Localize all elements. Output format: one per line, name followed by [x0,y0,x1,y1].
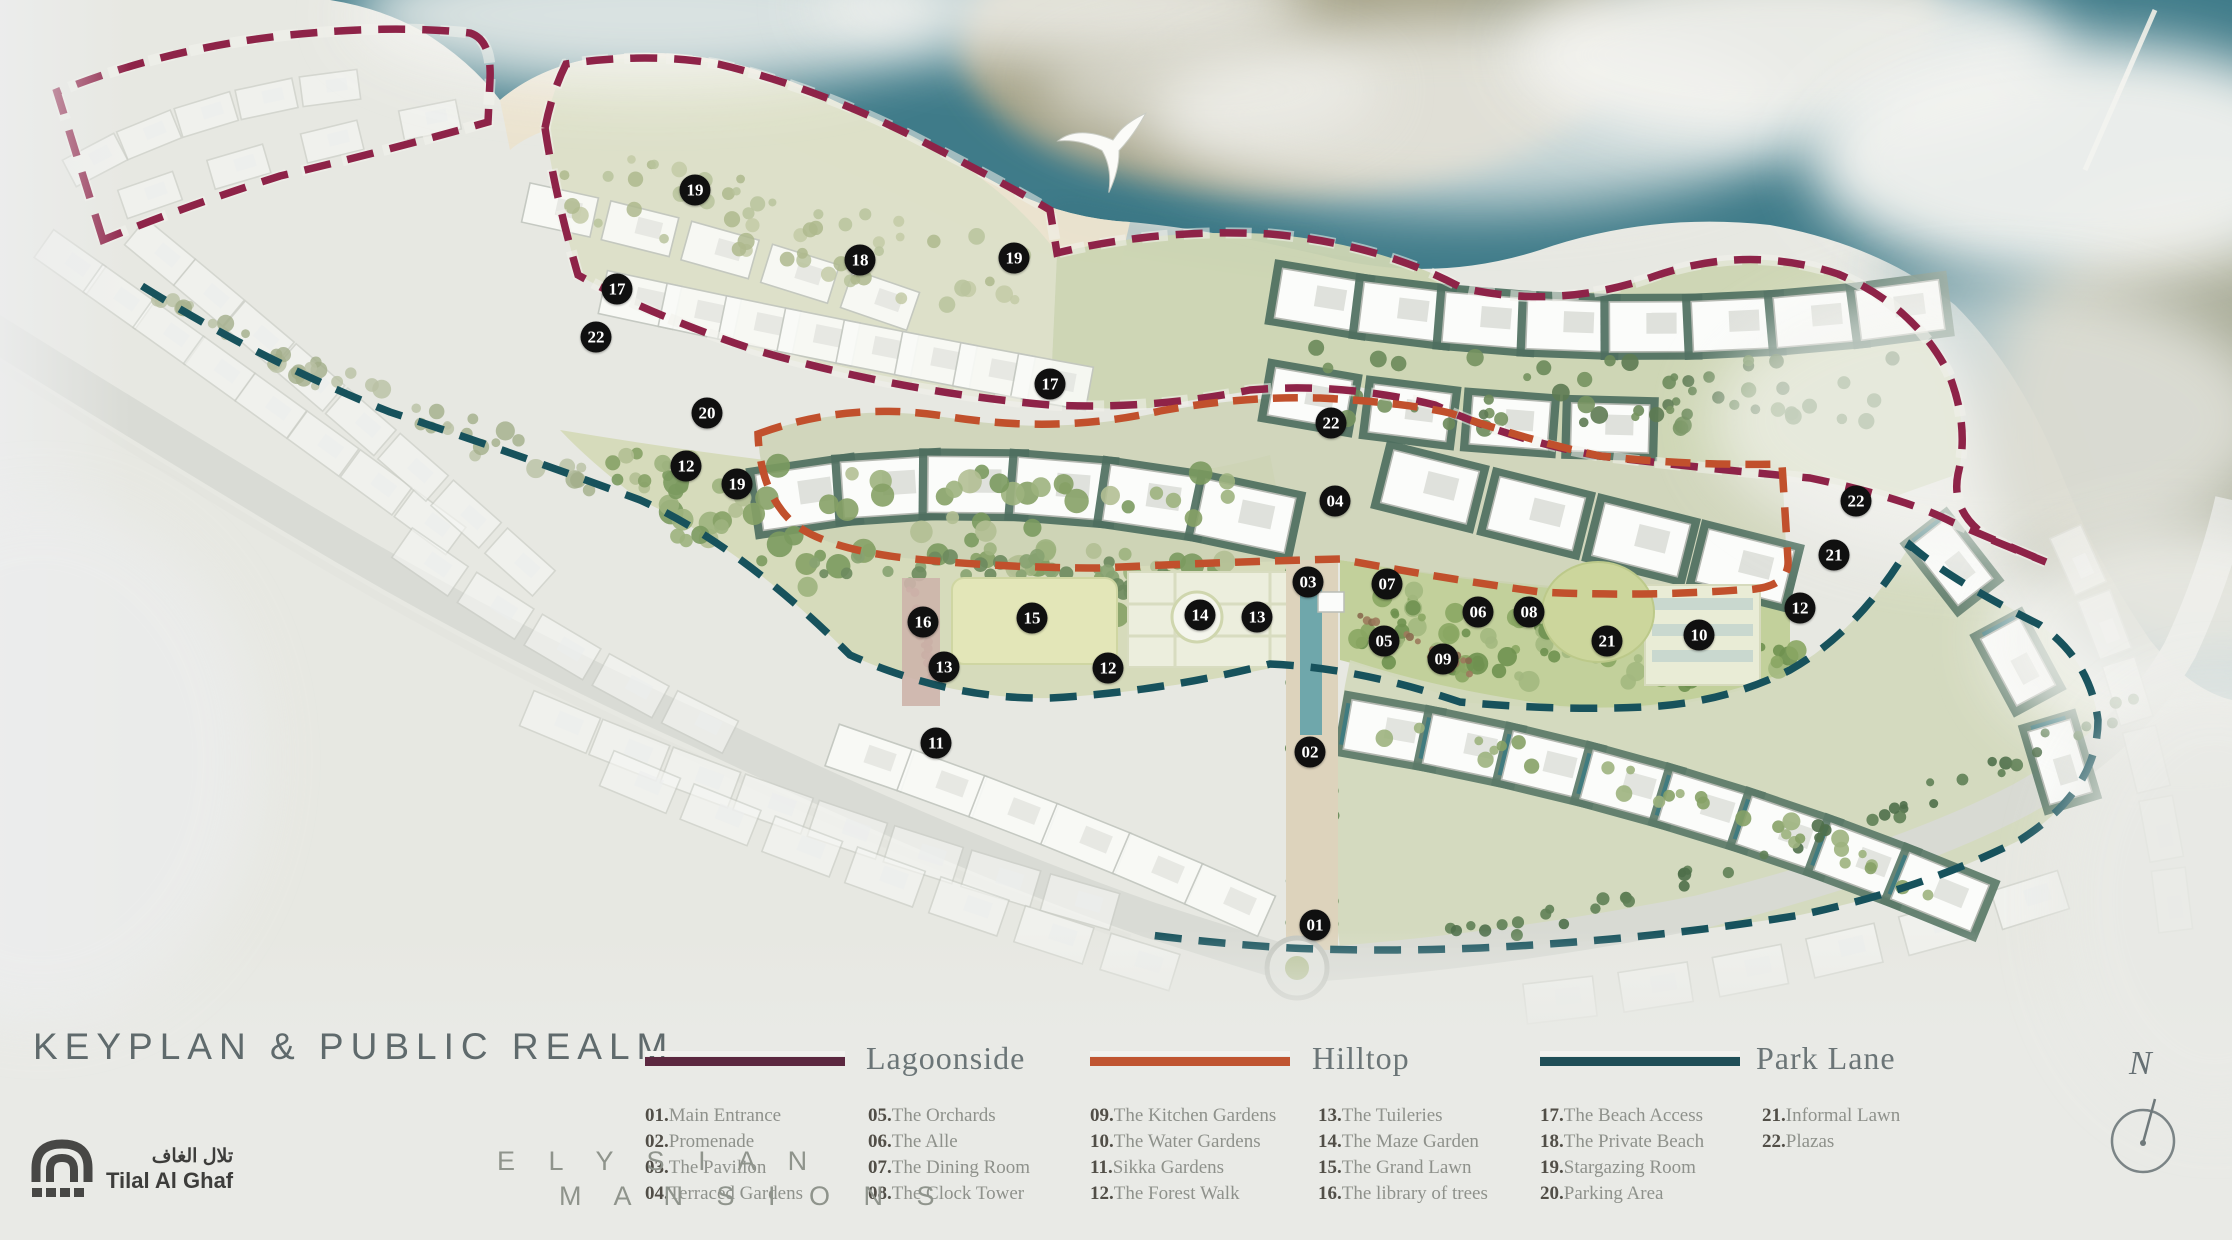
tree [467,413,478,424]
tree [1879,809,1891,821]
legend-item-13: 13.The Tuileries [1318,1103,1488,1129]
tree [756,555,767,566]
tree [1119,548,1132,561]
legend-item-label: The Orchards [892,1105,996,1126]
tree [819,494,839,514]
map-marker-20: 20 [692,398,723,429]
tree [1831,830,1849,848]
map-marker-19: 19 [999,243,1030,274]
tree [1405,600,1420,615]
tree [780,252,795,267]
tree [1681,408,1692,419]
tree [1031,477,1051,497]
legend-item-label: Plazas [1786,1131,1835,1152]
legend-item-number: 16. [1318,1183,1342,1204]
tree [954,280,971,297]
map-marker-22: 22 [1316,408,1347,439]
map-marker-13: 13 [929,652,960,683]
north-compass: N [2085,1045,2205,1205]
tree [612,474,624,486]
tree [798,577,818,597]
tree [945,481,962,498]
legend-item-17: 17.The Beach Access [1540,1103,1704,1129]
tree [1623,895,1635,907]
tree [1577,396,1594,413]
tree [208,319,218,329]
legend-item-number: 15. [1318,1157,1342,1178]
map-marker-11: 11 [921,728,952,759]
tree [896,233,905,242]
tree [985,277,995,287]
tree [910,521,933,544]
map-marker-07: 07 [1372,569,1403,600]
tree [1536,360,1551,375]
tree [241,329,250,338]
tree [1866,814,1878,826]
legend-column-5: 17.The Beach Access18.The Private Beach1… [1540,1103,1704,1207]
legend-item-number: 12. [1090,1183,1114,1204]
legend-item-number: 17. [1540,1105,1564,1126]
map-marker-21: 21 [1592,626,1623,657]
tree [1759,850,1768,859]
tree [975,520,996,541]
tree [871,484,894,507]
tree [1663,790,1675,802]
tree [1185,509,1203,527]
tree [1465,657,1472,664]
legend-item-number: 10. [1090,1131,1114,1152]
tree [1545,905,1554,914]
tree [443,421,452,430]
tree [813,209,823,219]
tree [670,529,685,544]
tree [895,292,907,304]
tree [1166,493,1181,508]
legend-item-05: 05.The Orchards [868,1103,1030,1129]
tree [1840,857,1851,868]
tree [638,474,651,487]
tree [882,566,893,577]
legend-item-18: 18.The Private Beach [1540,1129,1704,1155]
tree [797,248,808,259]
tree [1219,473,1235,489]
tree [1370,351,1387,368]
map-marker-10: 10 [1684,620,1715,651]
tree [1926,778,1934,786]
tree [1492,664,1506,678]
tree [768,198,776,206]
tree [491,438,500,447]
legend-item-number: 22. [1762,1131,1786,1152]
map-marker-12: 12 [671,451,702,482]
tilal-al-ghaf-logo-icon [30,1138,94,1200]
tree [2041,728,2050,737]
tree [1511,735,1525,749]
tree [1323,363,1334,374]
tree [1030,549,1045,564]
tree [1678,869,1686,877]
tree [1679,881,1690,892]
legend-item-label: The Grand Lawn [1342,1157,1472,1178]
tree [1579,418,1589,428]
legend-item-number: 09. [1090,1105,1114,1126]
tree [1735,810,1751,826]
tree [1703,371,1715,383]
map-marker-12: 12 [1785,593,1816,624]
tree [1466,670,1473,677]
tree [526,459,545,478]
map-marker-21: 21 [1819,540,1850,571]
legend-item-10: 10.The Water Gardens [1090,1129,1276,1155]
tree [1723,867,1734,878]
legend-title-parklane: Park Lane [1756,1040,1896,1077]
map-marker-06: 06 [1463,597,1494,628]
tree [989,473,1009,493]
tree [1484,394,1494,404]
legend-item-label: Parking Area [1564,1183,1664,1204]
tree [1666,406,1674,414]
legend-item-number: 14. [1318,1131,1342,1152]
tree [1662,376,1676,390]
tree [1357,613,1363,619]
tree [603,171,614,182]
legend-column-6: 21.Informal Lawn22.Plazas [1762,1103,1900,1155]
map-marker-22: 22 [581,322,612,353]
tree [1616,785,1633,802]
tree [766,454,790,478]
tree [767,531,793,557]
tree [745,218,759,232]
legend-item-label: The Maze Garden [1342,1131,1479,1152]
tree [750,196,765,211]
tree [1485,636,1498,649]
tree [560,170,570,180]
edge-fade-bottom [0,930,2232,1040]
legend-item-label: The Forest Walk [1114,1183,1240,1204]
tree [365,378,379,392]
tree [1649,407,1664,422]
legend-item-number: 05. [868,1105,892,1126]
legend-item-number: 01. [645,1105,669,1126]
tree [845,467,858,480]
tree [927,235,940,248]
villa [299,69,360,106]
tree [1308,340,1324,356]
tree [2010,759,2023,772]
map-marker-22: 22 [1841,486,1872,517]
tree [1596,892,1609,905]
tree [1348,629,1368,649]
tree [1626,766,1635,775]
tree [1376,729,1394,747]
tree [1466,921,1475,930]
legend-item-09: 09.The Kitchen Gardens [1090,1103,1276,1129]
tree [1473,660,1485,672]
tree [1524,758,1539,773]
tree [724,211,740,227]
tree [1697,797,1710,810]
tree [939,296,956,313]
tree [1552,384,1570,402]
map-marker-04: 04 [1320,486,1351,517]
map-marker-16: 16 [908,607,939,638]
legend-item-number: 11. [1090,1157,1113,1178]
map-marker-05: 05 [1369,626,1400,657]
legend-item-label: Informal Lawn [1786,1105,1900,1126]
tree [1688,386,1697,395]
tree [1023,519,1041,537]
map-marker-09: 09 [1428,644,1459,675]
map-marker-18: 18 [845,245,876,276]
tree [1548,650,1560,662]
tree [1782,812,1800,830]
tree [1010,295,1019,304]
tree [512,434,524,446]
legend-title-lagoonside: Lagoonside [866,1040,1025,1077]
tree [1382,655,1396,669]
tree [1497,919,1508,930]
legend-item-label: Main Entrance [669,1105,781,1126]
compass-needle [2143,1099,2155,1143]
legend-item-number: 18. [1540,1131,1564,1152]
tree [570,472,586,488]
legend-item-label: The library of trees [1342,1183,1488,1204]
tree [1189,461,1213,485]
tree [618,448,634,464]
legend-item-22: 22.Plazas [1762,1129,1900,1155]
tree [984,542,997,555]
tree [1590,903,1600,913]
map-marker-02: 02 [1295,737,1326,768]
tree [1820,824,1832,836]
legend-item-number: 20. [1540,1183,1564,1204]
tree [1122,500,1135,513]
tree [594,218,603,227]
tree [1512,916,1524,928]
tree [627,155,636,164]
tree [627,202,642,217]
tree [1405,582,1423,600]
tree [732,187,740,195]
legend-item-15: 15.The Grand Lawn [1318,1155,1488,1181]
legend-item-number: 13. [1318,1105,1342,1126]
tree [345,367,356,378]
legend-item-20: 20.Parking Area [1540,1181,1704,1207]
tree [821,267,836,282]
map-marker-08: 08 [1514,597,1545,628]
legend-item-number: 19. [1540,1157,1564,1178]
tree [1621,354,1638,371]
tree [1523,373,1531,381]
tree [1634,654,1643,663]
tree [893,216,904,227]
tree [1414,723,1425,734]
tree [1999,756,2012,769]
legend-item-11: 11.Sikka Gardens [1090,1155,1276,1181]
tree [1620,674,1635,689]
tree [1781,829,1791,839]
tree [1682,375,1694,387]
tree [1900,801,1908,809]
tree [1150,486,1163,499]
map-marker-14: 14 [1185,600,1216,631]
tree [839,218,853,232]
legend-bar-hilltop [1090,1057,1290,1066]
tree [1479,410,1489,420]
project-wordmark-line1: E L Y S I A N [497,1146,948,1177]
tree [1858,850,1866,858]
tree [743,503,765,525]
tree [411,404,421,414]
tree [1443,418,1455,430]
tree [1540,648,1548,656]
tree [1390,608,1398,616]
tree [605,455,620,470]
tree [809,557,820,568]
legend-item-label: The Private Beach [1564,1131,1704,1152]
map-marker-12: 12 [1093,653,1124,684]
tree [968,228,985,245]
legend-item-14: 14.The Maze Garden [1318,1129,1488,1155]
tree [1443,626,1459,642]
tree [1559,919,1570,930]
legend-item-12: 12.The Forest Walk [1090,1181,1276,1207]
legend-item-21: 21.Informal Lawn [1762,1103,1900,1129]
tree [732,242,747,257]
tree [1795,833,1805,843]
tree [714,519,729,534]
legend-item-label: The Beach Access [1564,1105,1703,1126]
tree [836,498,859,521]
brand-block: تلال الغاف Tilal Al Ghaf [30,1138,233,1200]
legend-item-label: The Kitchen Gardens [1114,1105,1277,1126]
tree [1418,613,1426,621]
pavilion [1318,592,1344,612]
tree [1957,774,1969,786]
tree [1631,413,1639,421]
legend-column-4: 13.The Tuileries14.The Maze Garden15.The… [1318,1103,1488,1207]
tree [1514,671,1524,681]
tree [1372,617,1381,626]
tree [1086,543,1102,559]
north-label: N [2129,1045,2152,1083]
legend-item-label: Sikka Gardens [1113,1157,1224,1178]
tree [722,187,735,200]
legend-bar-lagoonside [645,1057,845,1066]
tree [331,376,343,388]
tree [1929,799,1938,808]
tree [1221,490,1235,504]
tree [728,503,743,518]
tree [1466,349,1483,366]
map-marker-17: 17 [602,274,633,305]
tree [859,208,871,220]
map-marker-19: 19 [722,469,753,500]
legend-title-hilltop: Hilltop [1312,1040,1410,1077]
tree [1577,372,1592,387]
tree [1474,736,1483,745]
tree [671,162,687,178]
tree [946,511,959,524]
map-marker-17: 17 [1035,369,1066,400]
legend-item-16: 16.The library of trees [1318,1181,1488,1207]
tree [1415,638,1421,644]
legend-item-number: 21. [1762,1105,1786,1126]
project-wordmark: E L Y S I A N M A N S I O N S [497,1146,948,1212]
legend-column-3: 09.The Kitchen Gardens10.The Water Garde… [1090,1103,1276,1207]
map-marker-01: 01 [1300,910,1331,941]
tree [1059,482,1071,494]
tree [649,160,659,170]
tree [1477,752,1493,768]
tree [841,568,853,580]
tree [809,221,823,235]
tree [1865,862,1877,874]
brand-arabic-name: تلال الغاف [106,1145,233,1168]
tree [2032,747,2042,757]
tree [659,234,669,244]
brand-latin-name: Tilal Al Ghaf [106,1168,233,1194]
tree [1889,803,1900,814]
legend-item-label: Stargazing Room [1564,1157,1696,1178]
tree [496,421,515,440]
tree [1771,656,1784,669]
tree [874,246,884,256]
legend-item-label: The Water Gardens [1114,1131,1261,1152]
legend-item-01: 01.Main Entrance [645,1103,803,1129]
tree [1604,355,1615,366]
legend-item-19: 19.Stargazing Room [1540,1155,1704,1181]
tree [1676,789,1685,798]
tree [1998,769,2006,777]
tree [1498,647,1517,666]
tree [1462,629,1471,638]
map-marker-13: 13 [1242,602,1273,633]
tree [736,175,745,184]
tree [1497,741,1507,751]
tree [819,569,828,578]
map-marker-03: 03 [1293,567,1324,598]
project-wordmark-line2: M A N S I O N S [559,1181,948,1212]
page-title: KEYPLAN & PUBLIC REALM [33,1026,674,1068]
tree [1406,633,1414,641]
tree [628,171,643,186]
tree [1987,757,1996,766]
tree [850,275,860,285]
tree [1601,761,1614,774]
legend-item-label: The Tuileries [1342,1105,1443,1126]
tree [1923,890,1934,901]
tree [1101,486,1120,505]
tree [1391,356,1407,372]
legend-bar-parklane [1540,1057,1740,1066]
map-marker-15: 15 [1017,603,1048,634]
map-marker-19: 19 [680,175,711,206]
tree [429,404,445,420]
